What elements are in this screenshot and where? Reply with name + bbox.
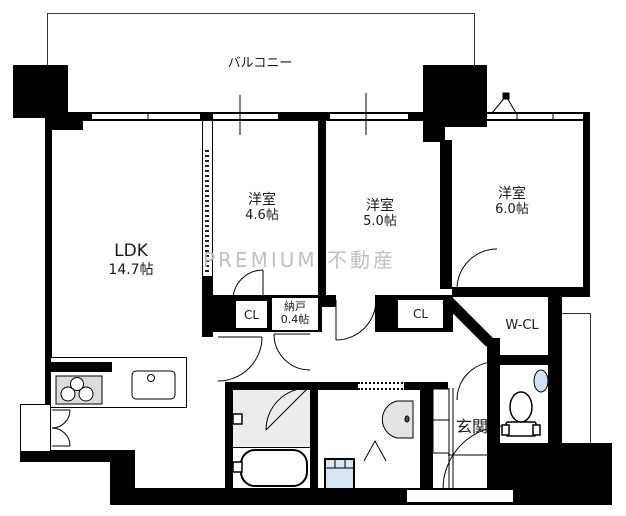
door-leaf-bathroom <box>266 388 308 430</box>
door-arc-bedroom46 <box>233 270 263 300</box>
toilet-group <box>502 370 548 436</box>
bathtub-handle <box>233 462 242 472</box>
door-arc-ldk <box>218 337 262 381</box>
door-arc-toilet <box>457 362 495 400</box>
shower-handle <box>233 414 242 424</box>
stove-burner-3 <box>71 378 84 391</box>
folding-door-washroom <box>364 441 386 461</box>
balcony-door-pivot <box>503 93 509 99</box>
vanity-group <box>382 401 413 438</box>
kitchen-fixtures <box>56 371 175 404</box>
entrance-label: 玄関 <box>456 418 488 436</box>
toilet-arm-left <box>502 425 509 435</box>
double-door-lower-arc <box>52 428 70 446</box>
fixtures-overlay <box>0 0 626 516</box>
washing-machine <box>325 459 354 489</box>
toilet-window <box>534 370 548 392</box>
entrance-step <box>406 489 514 503</box>
door-arc-bedroom60 <box>457 249 497 289</box>
toilet-bowl <box>510 392 532 422</box>
vanity-faucet <box>405 416 409 422</box>
bath-fixtures <box>233 414 307 486</box>
door-arc-storage <box>274 334 310 370</box>
double-door-upper-arc <box>52 410 70 428</box>
laundry <box>325 459 354 489</box>
door-arc-bedroom50 <box>336 300 376 340</box>
bathtub <box>241 450 307 486</box>
toilet-arm-right <box>533 425 540 435</box>
floor-plan: バルコニー CL 納戸 0.4帖 CL W-CL <box>0 0 626 516</box>
toilet-tank <box>506 422 536 436</box>
entrance-label-box: 玄関 <box>446 413 498 441</box>
